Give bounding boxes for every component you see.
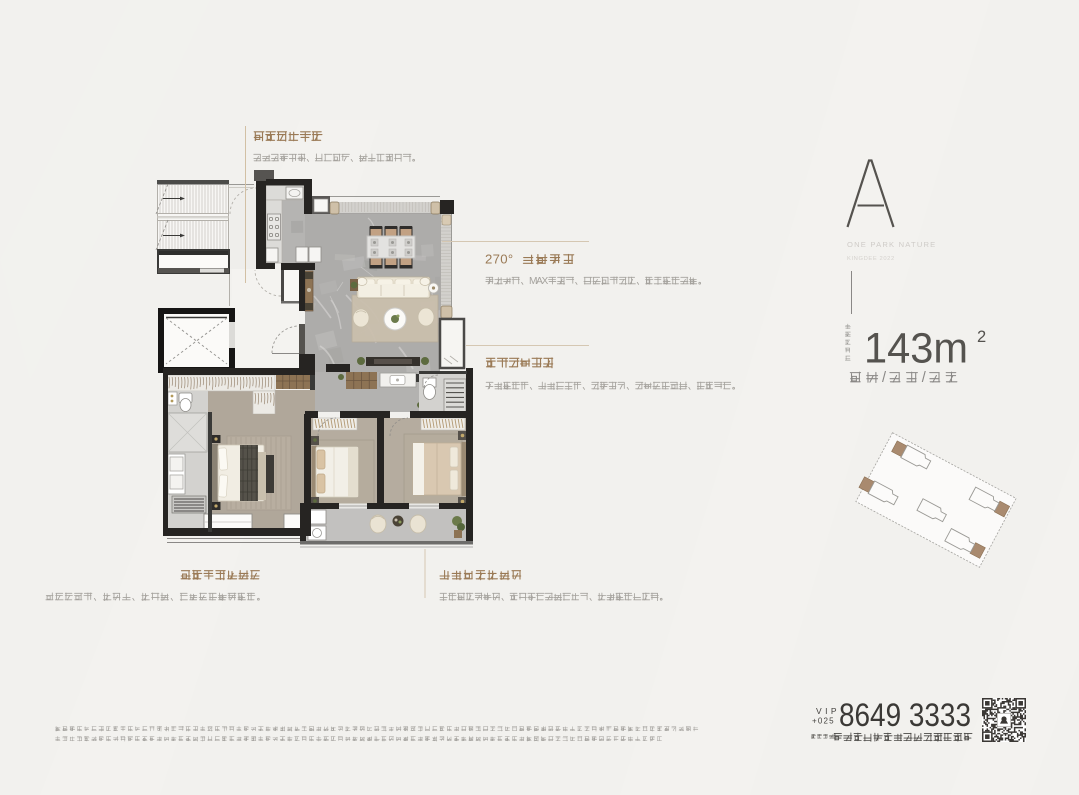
svg-text:8649 3333: 8649 3333 <box>839 697 971 733</box>
svg-text:VIP: VIP <box>816 706 840 716</box>
svg-text:+025: +025 <box>812 717 835 726</box>
svg-text:KINGDEE 2022: KINGDEE 2022 <box>847 256 895 262</box>
svg-text:ONE PARK NATURE: ONE PARK NATURE <box>847 240 936 249</box>
svg-text:143m: 143m <box>864 325 968 373</box>
svg-text:MAX: MAX <box>529 276 548 287</box>
svg-text:/: / <box>882 370 888 386</box>
svg-text:270°: 270° <box>485 251 513 266</box>
svg-text:/: / <box>922 370 928 386</box>
svg-text:2: 2 <box>977 328 986 346</box>
